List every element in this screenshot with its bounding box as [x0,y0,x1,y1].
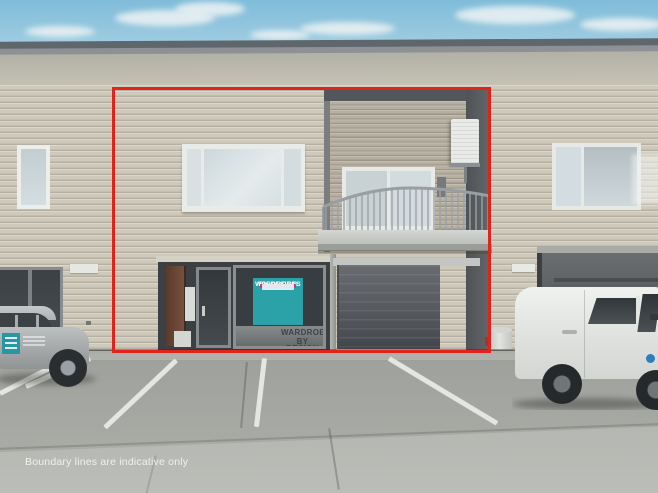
disclaimer-watermark: Boundary lines are indicative only [25,456,188,468]
decal-bar [5,337,17,339]
van-door-handle [562,330,577,334]
cloud [455,6,575,24]
boundary-overlay [112,87,491,353]
parked-van-right [512,270,658,410]
van-blue-cap [646,354,655,363]
cloud [175,2,245,16]
left-unit-wall-sign [70,264,98,273]
decal-bar [5,342,17,344]
curtain-reflection [632,154,658,204]
decal-text-line [23,344,45,346]
window-pane [584,147,637,206]
roof-rack-bar [554,278,658,282]
parked-car-left [0,303,92,387]
van-mirror [650,314,658,320]
cloud [580,18,658,31]
cloud [250,30,310,40]
decal-text-line [23,336,45,338]
cloud [300,22,395,35]
van-wheel [542,364,582,404]
right-unit-upper-window [552,143,641,210]
decal-bar [5,347,17,349]
cloud [25,26,95,37]
left-unit-upper-window [17,145,50,209]
car-teal-decal [2,333,20,354]
window-pane [556,147,581,206]
bin-lid [491,327,512,333]
eave-band [0,51,658,88]
van-shadow [512,398,658,410]
listing-photo: WARDROBES BY DESIGN WARDROBES BY DESIGN [0,0,658,493]
car-wheel [49,349,87,387]
window-glass [21,149,46,205]
van-door-seam [584,290,585,378]
decal-text-line [23,340,45,342]
